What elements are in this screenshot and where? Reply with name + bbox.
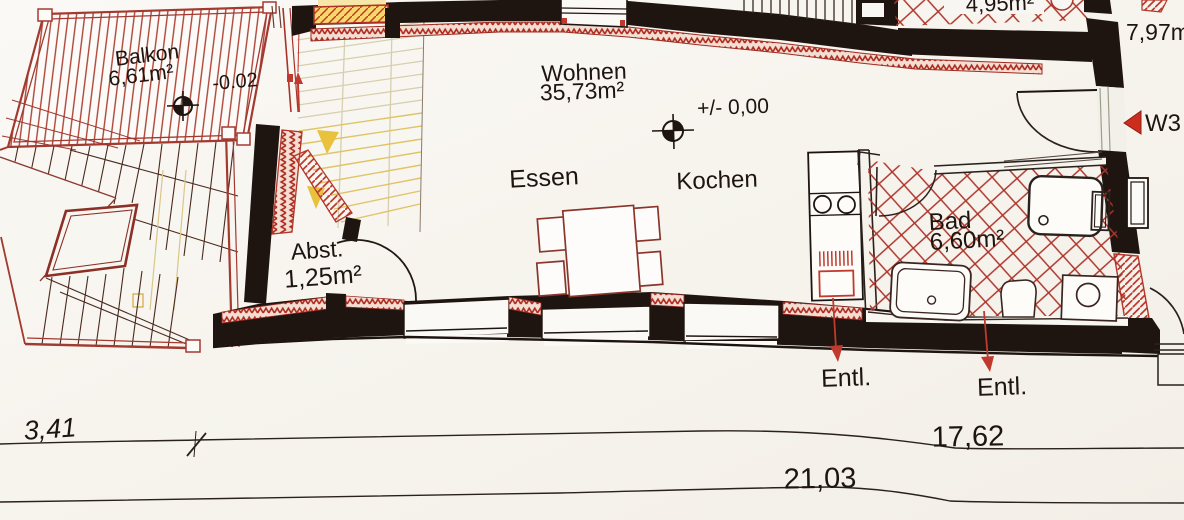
svg-text:+/- 0,00: +/- 0,00	[697, 95, 770, 120]
svg-text:Kochen: Kochen	[676, 166, 758, 196]
svg-text:1,25m²: 1,25m²	[283, 260, 363, 293]
svg-text:Essen: Essen	[509, 162, 580, 194]
svg-text:21,03: 21,03	[783, 462, 856, 495]
svg-text:W3: W3	[1145, 110, 1181, 137]
svg-text:3,41: 3,41	[23, 412, 78, 446]
svg-text:17,62: 17,62	[931, 420, 1004, 453]
svg-text:Entl.: Entl.	[821, 363, 872, 393]
svg-text:35,73m²: 35,73m²	[539, 77, 625, 106]
svg-text:7,97m: 7,97m	[1126, 19, 1184, 45]
svg-text:4,95m²: 4,95m²	[965, 0, 1034, 17]
svg-text:Abst.: Abst.	[290, 235, 344, 265]
svg-text:-0.02: -0.02	[211, 69, 258, 95]
svg-text:Entl.: Entl.	[977, 372, 1028, 402]
svg-text:6,60m²: 6,60m²	[929, 225, 1005, 256]
